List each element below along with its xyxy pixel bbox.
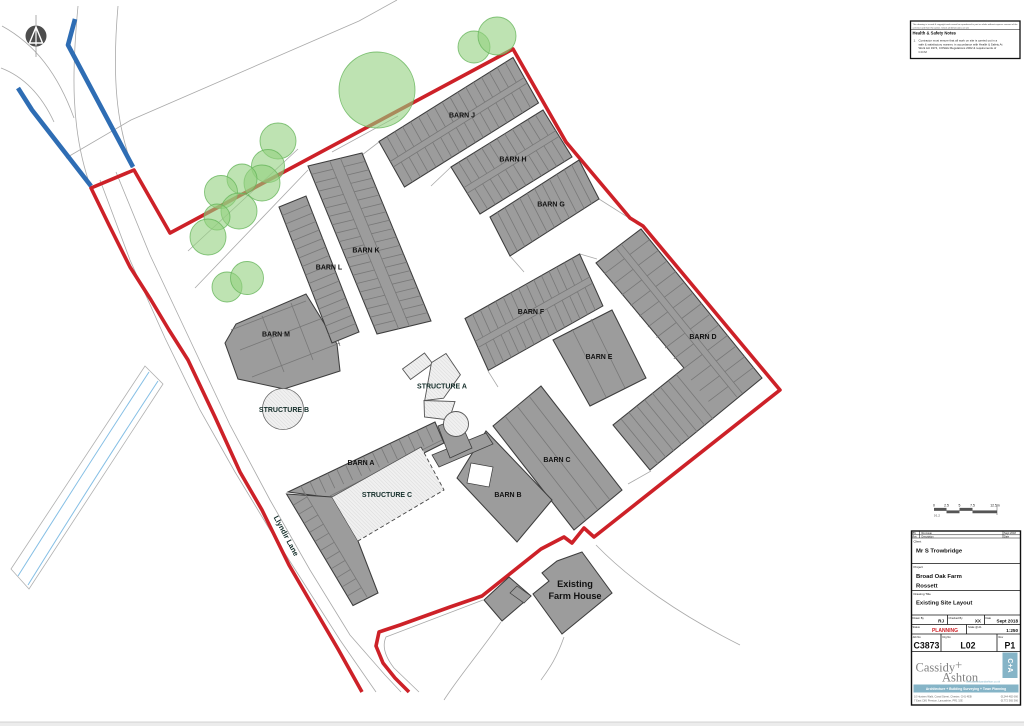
svg-text:STRUCTURE C: STRUCTURE C [362, 492, 412, 499]
svg-text:Date: Date [1004, 535, 1010, 538]
svg-text:C3873: C3873 [914, 641, 940, 651]
svg-text:Status: Status [913, 625, 921, 629]
svg-text:L02: L02 [960, 641, 975, 651]
svg-text:BARN L: BARN L [316, 265, 343, 272]
svg-text:BARN J: BARN J [449, 113, 475, 120]
svg-text:BARN G: BARN G [537, 202, 565, 209]
svg-text:Re-Issue: Re-Issue [922, 531, 933, 535]
svg-text:7.5: 7.5 [970, 504, 975, 508]
svg-text:Scale @ A1: Scale @ A1 [968, 625, 982, 629]
svg-text:1.: 1. [914, 39, 917, 43]
svg-text:Drawing Title: Drawing Title [914, 592, 932, 596]
svg-text:Mr S Trowbridge: Mr S Trowbridge [916, 549, 963, 555]
svg-text:Architecture + Building Survey: Architecture + Building Surveying + Town… [926, 687, 1006, 691]
svg-text:5: 5 [959, 504, 961, 508]
svg-text:Health & Safety Notes: Health & Safety Notes [913, 31, 957, 36]
svg-text:BARN M: BARN M [262, 332, 290, 339]
svg-text:Work Act 1974, COSHH Regulatio: Work Act 1974, COSHH Regulations 2002 & … [919, 46, 997, 50]
svg-text:BARN E: BARN E [586, 354, 613, 361]
svg-text:Job No: Job No [913, 635, 922, 639]
svg-text:Sept 2018: Sept 2018 [997, 619, 1019, 624]
svg-text:10 Hunters Walk, Canal Street,: 10 Hunters Walk, Canal Street, Chester, … [914, 695, 972, 699]
svg-text:BARN D: BARN D [689, 334, 716, 341]
svg-text:This drawing is issued & copyr: This drawing is issued & copyright and c… [913, 23, 1019, 26]
svg-text:BARN K: BARN K [352, 248, 379, 255]
svg-text:Description: Description [922, 535, 935, 538]
svg-text:Checked By: Checked By [949, 616, 964, 620]
svg-text:Sept 2018: Sept 2018 [1004, 531, 1016, 535]
svg-text:Existing: Existing [557, 579, 593, 589]
svg-text:www.cassidyandashton.co.uk: www.cassidyandashton.co.uk [966, 680, 1001, 684]
svg-text:01244 482 666: 01244 482 666 [1001, 695, 1019, 699]
svg-text:STRUCTURE A: STRUCTURE A [417, 384, 467, 391]
svg-text:RJ: RJ [938, 619, 944, 624]
svg-text:0 1 2: 0 1 2 [934, 514, 940, 518]
svg-text:Drawn By: Drawn By [913, 616, 925, 620]
svg-text:Drg No: Drg No [943, 635, 952, 639]
svg-text:Rev: Rev [999, 635, 1004, 639]
svg-text:Farm House: Farm House [548, 591, 601, 601]
svg-text:0: 0 [933, 504, 935, 508]
svg-text:BARN F: BARN F [518, 309, 545, 316]
svg-text:XX: XX [975, 619, 982, 624]
svg-text:Date: Date [986, 616, 992, 620]
svg-text:BARN B: BARN B [494, 492, 521, 499]
svg-text:2.5: 2.5 [944, 504, 949, 508]
svg-text:C+A: C+A [1006, 658, 1013, 672]
svg-text:1:250: 1:250 [1006, 628, 1018, 633]
svg-text:Existing Site Layout: Existing Site Layout [916, 601, 972, 607]
svg-text:Project: Project [914, 565, 924, 569]
svg-text:P1: P1 [1005, 641, 1016, 651]
svg-text:BARN H: BARN H [499, 157, 526, 164]
svg-text:01772 365 366: 01772 365 366 [1001, 698, 1019, 702]
svg-text:BARN C: BARN C [543, 457, 570, 464]
svg-text:C.D.M: C.D.M [919, 50, 928, 54]
svg-text:P1: P1 [913, 531, 917, 535]
svg-text:BARN A: BARN A [348, 460, 375, 467]
svg-text:Client: Client [914, 540, 922, 544]
svg-text:architect and then the owner.: architect and then the owner. Check all … [913, 26, 970, 29]
svg-text:PLANNING: PLANNING [932, 628, 958, 634]
svg-text:7 East Cliff, Preston, Lancash: 7 East Cliff, Preston, Lancashire, PR1 3… [914, 698, 963, 702]
svg-text:Broad Oak Farm: Broad Oak Farm [916, 574, 962, 580]
svg-text:STRUCTURE B: STRUCTURE B [259, 407, 309, 414]
svg-text:12.5m: 12.5m [990, 504, 1000, 508]
svg-text:Rossett: Rossett [916, 584, 938, 590]
